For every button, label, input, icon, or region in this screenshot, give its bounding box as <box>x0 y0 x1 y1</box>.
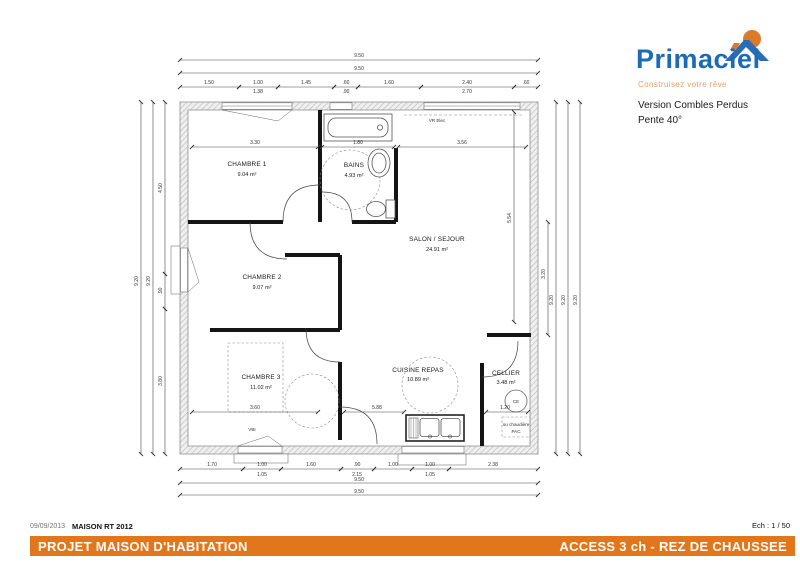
area-bains: 4.93 m² <box>345 173 364 179</box>
dim-right-overall-3: 9.20 <box>573 295 579 305</box>
area-cellier: 3.48 m² <box>497 380 516 386</box>
dim-top-seg: 1.00 <box>253 80 263 86</box>
project-title: PROJET MAISON D'HABITATION <box>38 539 248 554</box>
window-vbi <box>238 447 282 454</box>
dim-bot-seg: 1.00 <box>425 462 435 468</box>
toilet <box>386 200 395 218</box>
guides <box>228 150 530 437</box>
window-cuisine <box>402 447 464 454</box>
window-bains <box>330 103 352 110</box>
dim-bot-overall-2: 9.50 <box>354 489 364 495</box>
outer-walls <box>180 102 538 454</box>
sheet-title: ACCESS 3 ch - REZ DE CHAUSSEE <box>559 539 787 554</box>
vr-elec-label: VR Elec <box>429 118 446 123</box>
dim-top-overall-1: 9.50 <box>354 53 364 59</box>
dim-top-seg: 1.60 <box>384 80 394 86</box>
dim-bot-overall-1: 9.50 <box>354 477 364 483</box>
dim-bot-seg: 1.00 <box>388 462 398 468</box>
dim-salon-h: 5.54 <box>507 213 513 223</box>
dim-chambre1-w: 3.30 <box>250 140 260 146</box>
footer-title-bar: PROJET MAISON D'HABITATION ACCESS 3 ch -… <box>30 536 795 556</box>
dim-bot-seg: 2.38 <box>488 462 498 468</box>
footer-doc-ref: MAISON RT 2012 <box>72 522 133 531</box>
footer-date: 09/09/2013 <box>30 523 65 530</box>
dim-right-h: 3.20 <box>541 269 547 279</box>
window-left-sill <box>171 246 180 294</box>
dim-cellier-w: 1.20 <box>500 405 510 411</box>
area-chambre1: 9.04 m² <box>238 172 257 178</box>
dim-top-seg: 2.40 <box>462 80 472 86</box>
dim-top-sub: 2.70 <box>462 89 472 95</box>
kitchen-sink <box>406 415 464 441</box>
dim-left-seg: 4.50 <box>158 183 164 193</box>
area-salon: 24.91 m² <box>426 247 448 253</box>
dim-bot-sub: 1.05 <box>257 472 267 478</box>
dim-bot-seg: 1.60 <box>306 462 316 468</box>
chaudiere-label-2: PAC <box>511 429 521 434</box>
room-cuisine: CUISINE REPAS <box>392 367 444 374</box>
room-chambre2: CHAMBRE 2 <box>242 274 281 281</box>
dim-right-overall-2: 9.20 <box>561 295 567 305</box>
drawing-sheet: Primaciel Construisez votre rêve Version… <box>0 0 800 566</box>
room-chambre3: CHAMBRE 3 <box>241 374 280 381</box>
dim-cuisine-w: 5.88 <box>372 405 382 411</box>
room-cellier: CELLIER <box>492 370 520 377</box>
vbi-label: VBI <box>248 427 255 432</box>
dim-salon-w: 3.56 <box>457 140 467 146</box>
dim-top-sub: .90 <box>343 89 350 95</box>
dim-top-seg: .60 <box>343 80 350 86</box>
floor-plan: CHAMBRE 1 9.04 m² BAINS 4.93 m² SALON / … <box>0 0 800 566</box>
dim-left-seg: 3.80 <box>158 376 164 386</box>
dim-bot-seg: 1.70 <box>207 462 217 468</box>
room-chambre1: CHAMBRE 1 <box>227 161 266 168</box>
windows <box>171 103 524 465</box>
area-cuisine: 10.89 m² <box>407 377 429 383</box>
dim-right-overall-1: 9.20 <box>549 295 555 305</box>
dim-top-seg: 1.45 <box>301 80 311 86</box>
area-chambre3: 11.02 m² <box>250 385 272 391</box>
dim-top-overall-2: 9.50 <box>354 66 364 72</box>
dim-left-overall-1: 9.20 <box>134 276 140 286</box>
dim-bains-w: 1.80 <box>353 140 363 146</box>
window-left <box>181 248 188 292</box>
dim-bot-seg: 1.00 <box>257 462 267 468</box>
dim-bot-seg: .90 <box>354 462 361 468</box>
footer-scale: Ech : 1 / 50 <box>752 521 790 530</box>
ce-label: CE <box>513 399 519 404</box>
dim-bot-sub: 1.05 <box>425 472 435 478</box>
dim-left-seg: .90 <box>158 287 164 294</box>
area-chambre2: 9.07 m² <box>253 285 272 291</box>
room-bains: BAINS <box>344 162 364 169</box>
dim-left-overall-2: 9.20 <box>146 276 152 286</box>
dim-top-seg: .60 <box>523 80 530 86</box>
room-salon: SALON / SEJOUR <box>409 236 465 243</box>
chaudiere-label-1: ou chaudière <box>503 422 530 427</box>
dim-top-sub: 1.38 <box>253 89 263 95</box>
dim-chambre3-w: 3.60 <box>250 405 260 411</box>
dim-top-seg: 1.50 <box>204 80 214 86</box>
